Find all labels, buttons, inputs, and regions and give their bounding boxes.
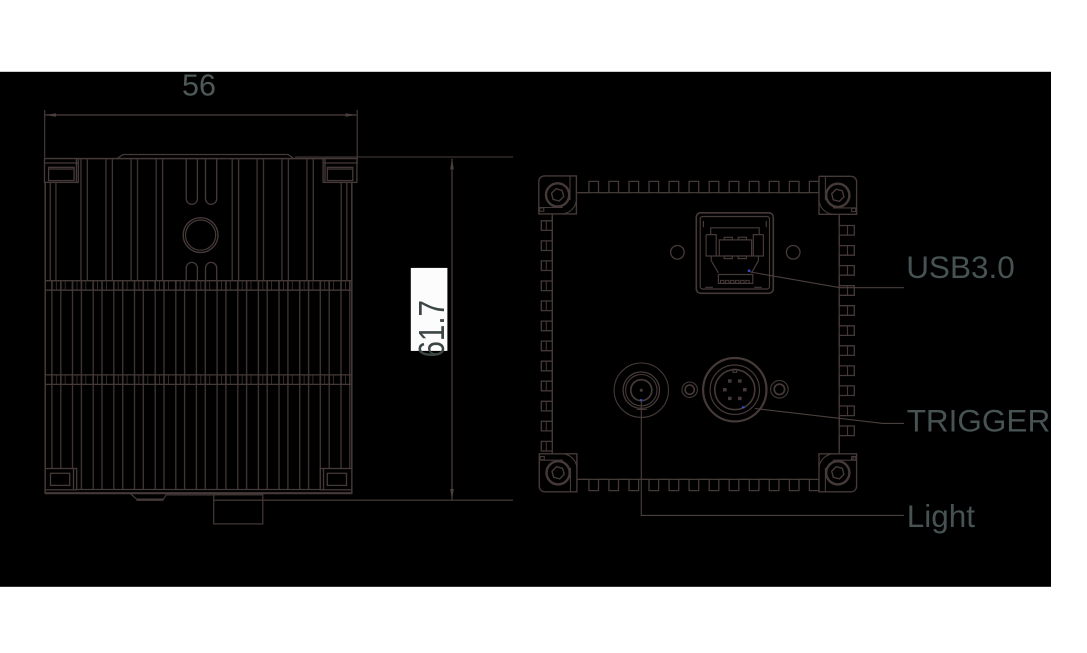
svg-text:Light: Light — [907, 498, 976, 534]
svg-text:61.7: 61.7 — [411, 300, 452, 358]
svg-text:56: 56 — [182, 68, 216, 102]
svg-text:TRIGGER: TRIGGER — [907, 403, 1051, 439]
svg-text:USB3.0: USB3.0 — [906, 249, 1015, 285]
